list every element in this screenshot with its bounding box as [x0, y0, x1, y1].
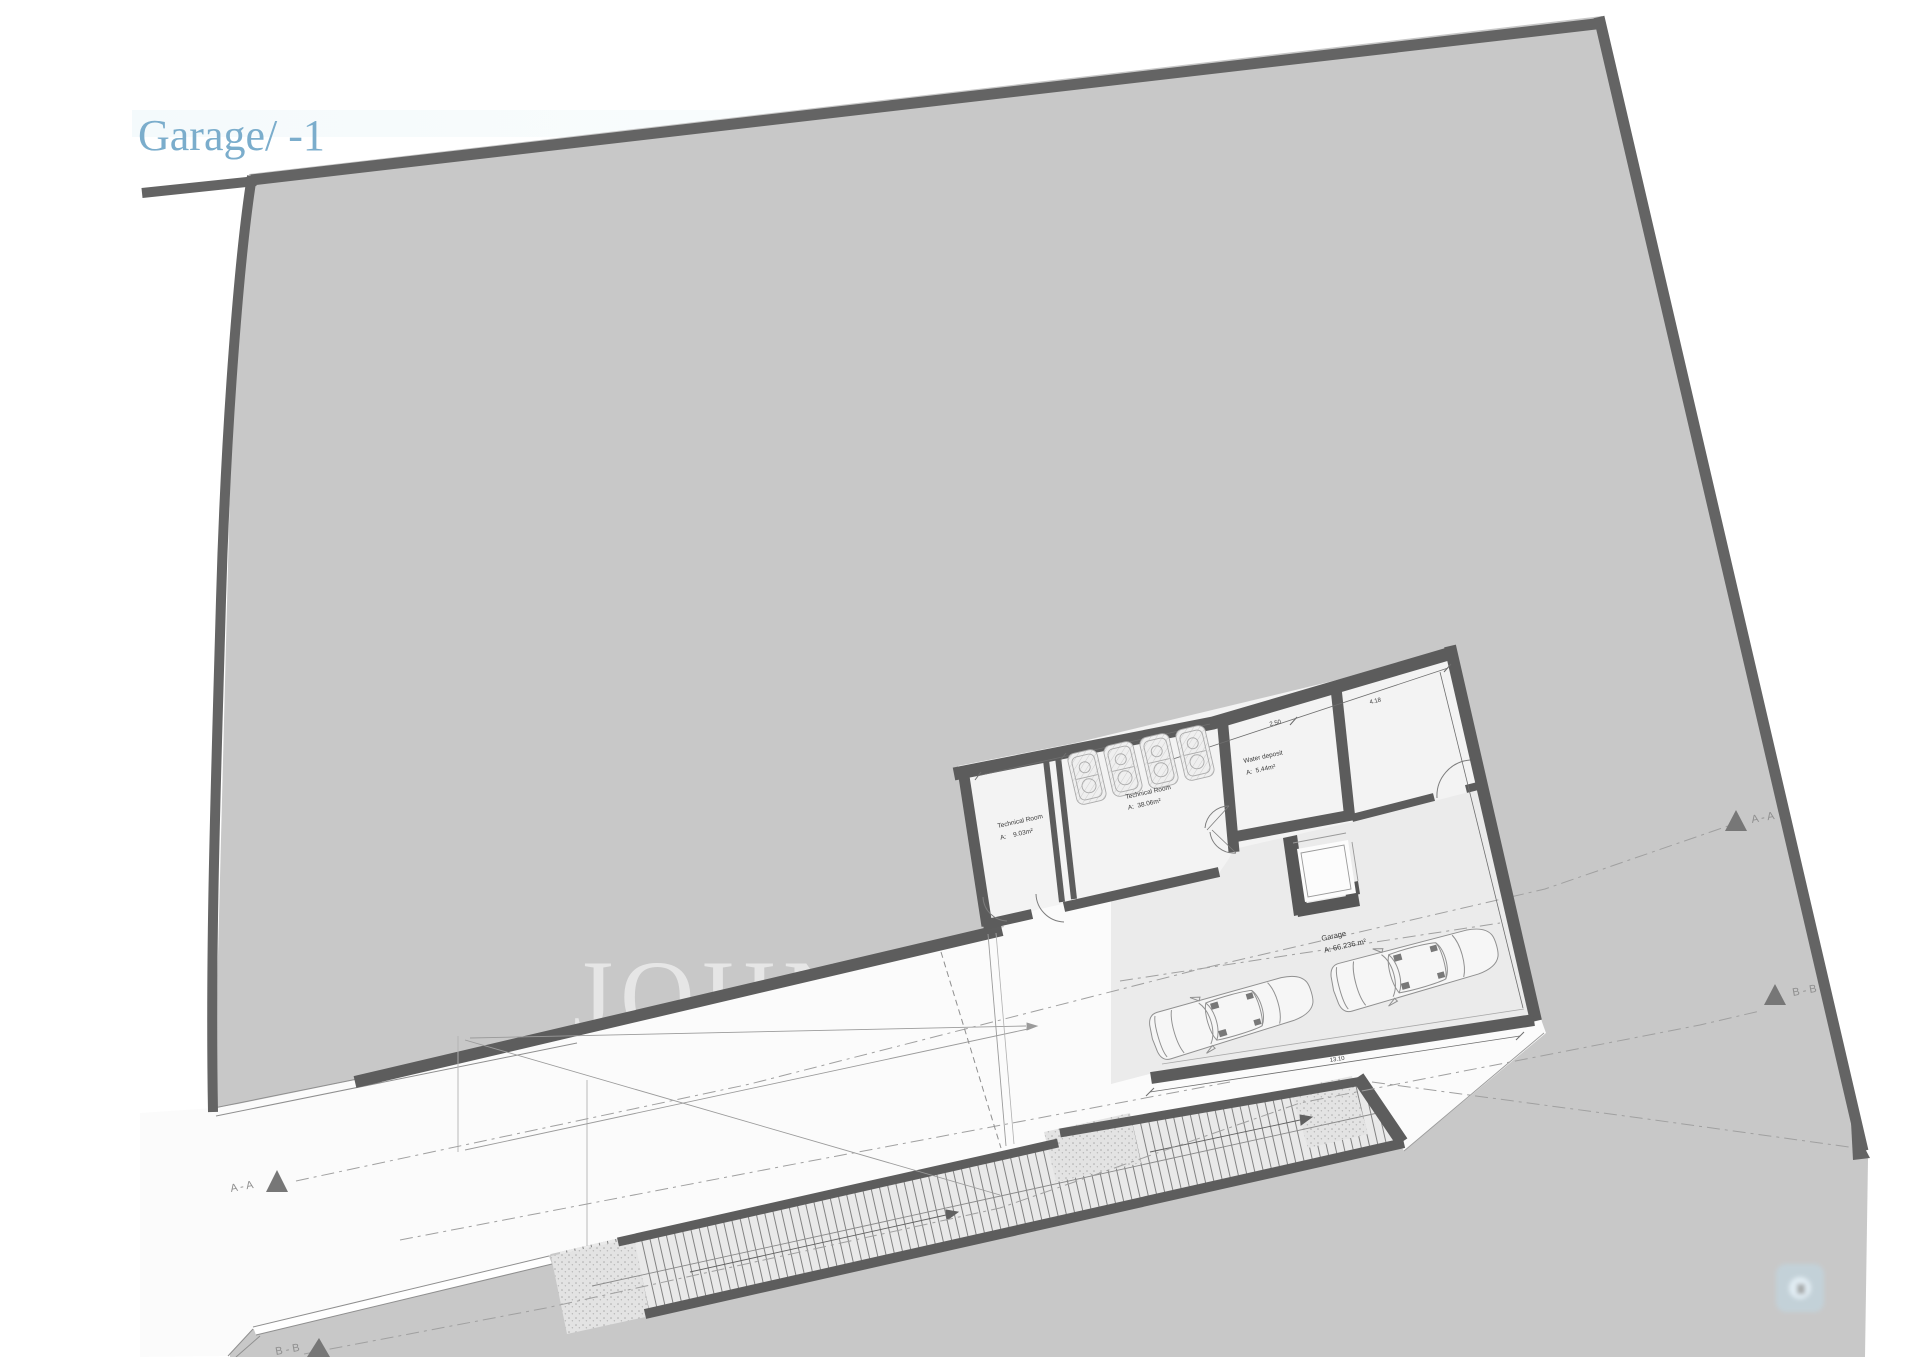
svg-text:Garage/ -1: Garage/ -1	[138, 111, 325, 160]
